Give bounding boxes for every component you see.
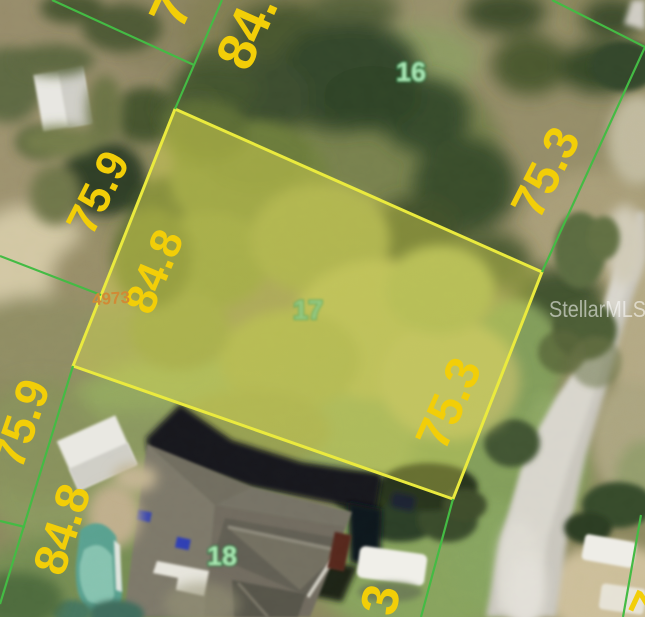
svg-text:18: 18: [207, 541, 237, 571]
svg-text:16: 16: [396, 57, 426, 87]
svg-text:17: 17: [293, 295, 323, 325]
svg-text:4973: 4973: [92, 288, 131, 310]
svg-text:StellarMLS: StellarMLS: [549, 296, 645, 322]
